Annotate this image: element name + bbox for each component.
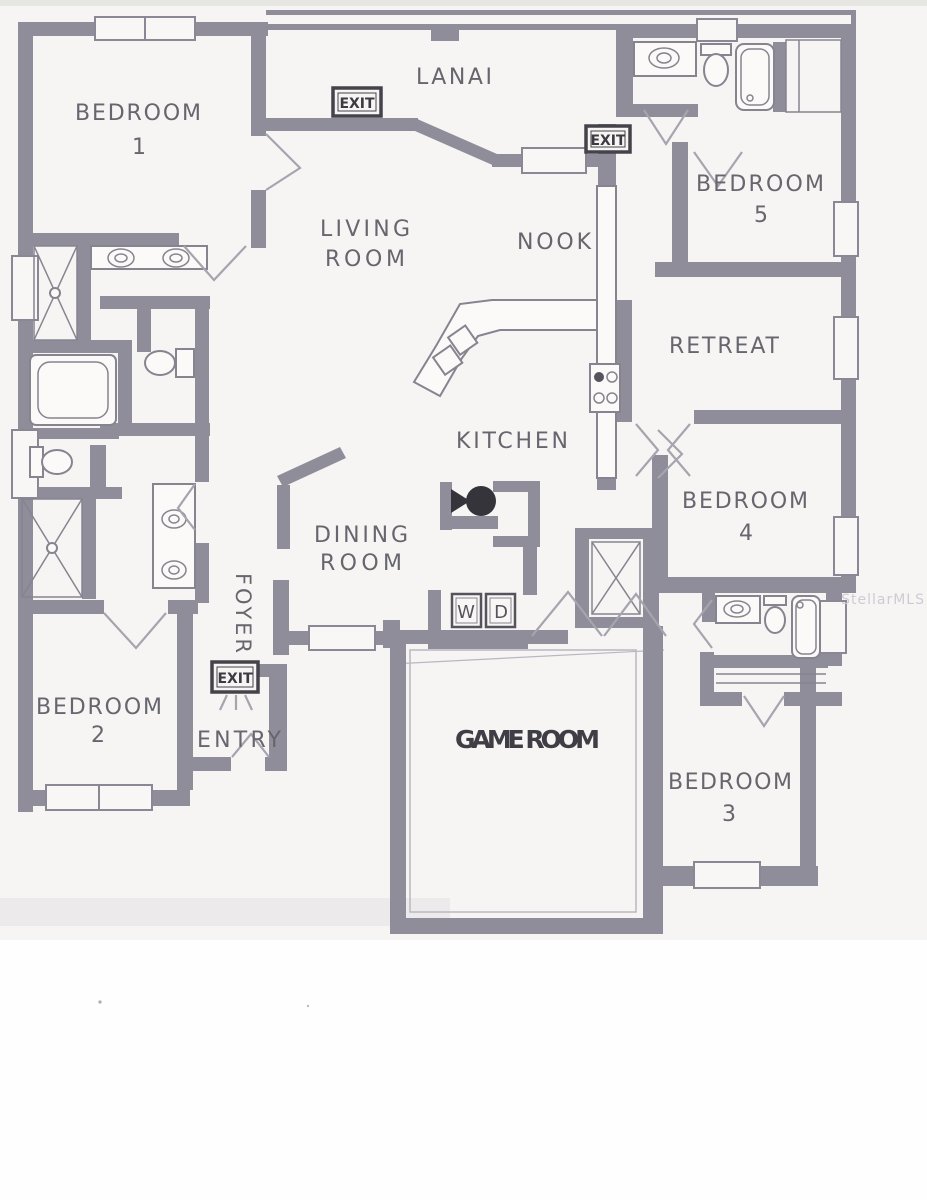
exit-sign-nook: EXIT — [586, 126, 630, 152]
dryer-label: D — [494, 602, 508, 623]
bedroom-5-label: BEDROOM — [696, 172, 826, 197]
washer-label: W — [457, 602, 475, 623]
scan-speck — [307, 1005, 309, 1007]
game-room-label: GAME ROOM — [455, 725, 601, 754]
sink-icon — [716, 596, 760, 623]
floor-plan-canvas: EXIT EXIT EXIT W D BEDROOM 1 LANAI LIVIN… — [0, 0, 927, 1200]
scan-smudge — [0, 898, 450, 926]
entry-label: ENTRY — [197, 728, 283, 753]
washer-icon: W — [452, 594, 481, 627]
exit-sign-label: EXIT — [217, 671, 253, 687]
floor-plan-page: EXIT EXIT EXIT W D BEDROOM 1 LANAI LIVIN… — [0, 0, 927, 1200]
living-room-label-line1: LIVING — [320, 217, 412, 242]
dining-room-label-line1: DINING — [314, 523, 410, 548]
exit-sign-lanai: EXIT — [333, 88, 381, 116]
bedroom-1-label: BEDROOM — [75, 101, 203, 126]
exit-sign-label: EXIT — [590, 133, 626, 149]
sink-icon — [634, 42, 696, 76]
bathtub-icon — [792, 596, 820, 658]
kitchen-label: KITCHEN — [456, 429, 570, 454]
exit-sign-label: EXIT — [339, 96, 375, 112]
bedroom-4-label: BEDROOM — [682, 489, 810, 514]
double-sink-vanity-icon — [91, 246, 207, 269]
stellar-mls-watermark: StellarMLS — [841, 592, 925, 608]
toilet-icon — [145, 349, 194, 377]
bedroom-2-number: 2 — [91, 723, 105, 748]
foyer-label: FOYER — [231, 573, 255, 655]
scan-edge — [0, 0, 927, 6]
bedroom-2-label: BEDROOM — [36, 695, 164, 720]
double-sink-vanity-icon — [153, 484, 195, 588]
bedroom-5-number: 5 — [754, 203, 768, 228]
bathtub-icon — [30, 355, 116, 425]
paper-lower — [0, 940, 927, 1200]
bedroom-1-number: 1 — [132, 135, 146, 160]
bedroom-3-number: 3 — [722, 802, 736, 827]
dryer-icon: D — [486, 594, 515, 627]
bedroom-3-label: BEDROOM — [668, 770, 794, 795]
toilet-icon — [764, 596, 786, 633]
retreat-label: RETREAT — [669, 334, 781, 359]
toilet-icon — [701, 44, 731, 86]
living-room-label-line2: ROOM — [325, 247, 407, 272]
bedroom-4-number: 4 — [739, 521, 753, 546]
lanai-label: LANAI — [416, 65, 494, 90]
bathtub-icon — [736, 44, 774, 110]
scan-speck — [98, 1000, 101, 1003]
dining-room-label-line2: ROOM — [320, 551, 404, 576]
nook-label: NOOK — [517, 230, 593, 255]
toilet-icon — [30, 447, 72, 477]
